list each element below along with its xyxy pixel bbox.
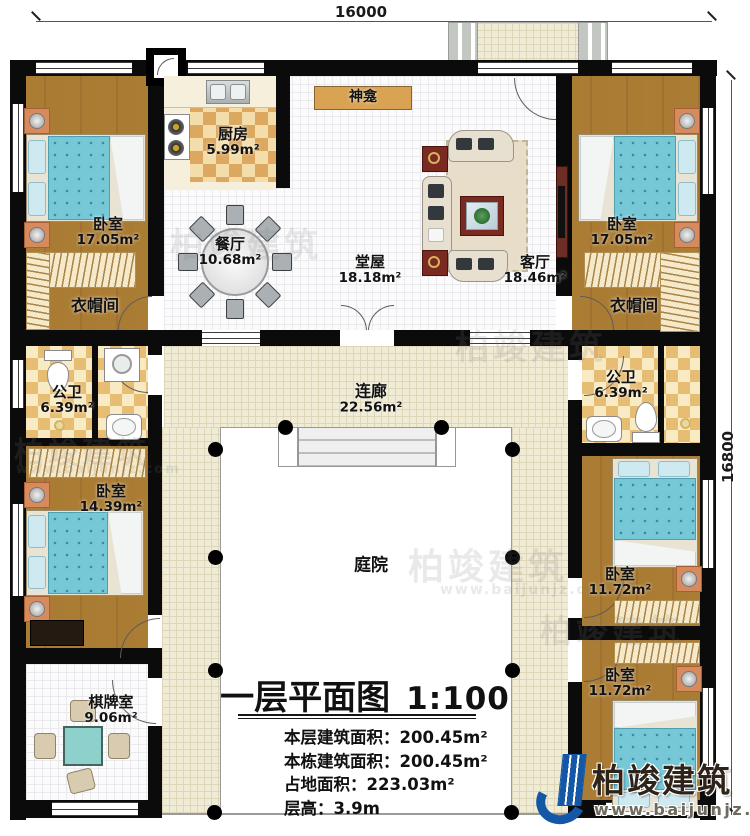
nightstand-icon — [676, 566, 702, 592]
sofa-cushion — [428, 184, 444, 198]
window-dining-corridor — [202, 332, 260, 344]
window-right-bedroomr1 — [702, 480, 714, 568]
window-top-bedroomtr — [612, 62, 692, 74]
nightstand-icon — [24, 596, 50, 622]
column-dot — [278, 420, 293, 435]
dimension-top-value: 16000 — [321, 3, 401, 21]
wall-leftwing-inner-a — [148, 334, 162, 355]
wall-dining-corridor-b — [260, 330, 340, 346]
pillow-icon — [28, 556, 46, 589]
label-living: 客厅 18.46m² — [504, 254, 567, 286]
sofa-cushion — [428, 228, 444, 242]
column-dot — [207, 805, 222, 820]
sink-basin-icon — [210, 84, 226, 100]
sofa-cushion — [456, 138, 472, 150]
sink-bowl — [592, 420, 616, 438]
dimension-tick — [31, 11, 41, 21]
desk-icon — [30, 620, 84, 646]
wall-bathr-divider — [658, 346, 664, 443]
label-corridor: 连廊 22.56m² — [340, 382, 403, 415]
sink-basin-icon — [230, 84, 246, 100]
label-bath-left: 公卫 6.39m² — [40, 384, 93, 416]
window-bottom-chess — [52, 802, 138, 816]
lamp-icon — [428, 152, 440, 164]
info-building-area: 本栋建筑面积：200.45m² — [284, 750, 514, 774]
toilet-tank-icon — [632, 432, 660, 443]
nightstand-icon — [24, 482, 50, 508]
pillow-icon — [28, 182, 46, 216]
closet-rack-icon — [584, 252, 662, 288]
sofa-cushion — [456, 258, 472, 270]
column-dot — [208, 442, 223, 457]
floor-plan-canvas: 柏竣建筑 柏竣建筑 www.baijunjz.com 柏竣建筑 柏竣建筑 www… — [0, 0, 750, 836]
label-bedroom-r1: 卧室 11.72m² — [589, 566, 652, 598]
pillow-icon — [28, 515, 46, 548]
wall-dining-corridor-a — [164, 330, 202, 346]
pillow-icon — [678, 140, 696, 174]
mattress-icon — [614, 136, 676, 220]
sofa-cushion — [478, 258, 494, 270]
mattress-icon — [48, 512, 108, 594]
plant-icon — [474, 208, 490, 224]
pillow-icon — [658, 461, 690, 477]
label-chess-room: 棋牌室 9.06m² — [84, 694, 137, 726]
info-floor-area: 本层建筑面积：200.45m² — [284, 726, 514, 750]
brand-logo: 柏竣建筑 www.baijunjz.com — [534, 750, 750, 836]
nightstand-icon — [674, 222, 700, 248]
plan-title-row: 一层平面图 1:100 — [215, 670, 515, 714]
pillow-icon — [678, 182, 696, 216]
wall-cloaktl-bottom — [26, 330, 166, 346]
label-courtyard: 庭院 — [354, 556, 388, 575]
sofa-cushion — [478, 138, 494, 150]
watermark-url: www.baijunjz.com — [16, 462, 181, 477]
label-kitchen: 厨房 5.99m² — [206, 126, 259, 158]
pillow-icon — [618, 461, 650, 477]
wall-leftwing-inner-d — [148, 726, 162, 800]
column-dot — [208, 550, 223, 565]
door-gap-hall — [340, 330, 394, 346]
burner-icon — [168, 140, 184, 156]
wall-bathr-bedroomr1 — [582, 443, 700, 456]
window-left-bedroomtl — [12, 104, 24, 192]
column-dot — [434, 420, 449, 435]
label-bedroom-tr: 卧室 17.05m² — [591, 216, 654, 248]
mattress-icon — [48, 136, 110, 220]
closet-rack-icon — [26, 252, 50, 330]
plan-info-block: 本层建筑面积：200.45m² 本栋建筑面积：200.45m² 占地面积：223… — [284, 726, 514, 820]
closet-rack-icon — [660, 252, 700, 332]
mahjong-table-icon — [63, 726, 103, 766]
window-top-bedroomtl — [36, 62, 132, 74]
nightstand-icon — [674, 108, 700, 134]
chair-icon — [108, 733, 130, 759]
label-hall: 堂屋 18.18m² — [339, 254, 402, 286]
window-entry — [478, 62, 578, 74]
closet-rack-icon — [48, 252, 136, 288]
pillow-icon — [28, 140, 46, 174]
wall-leftwing-inner-b — [148, 395, 162, 615]
chair-icon — [34, 733, 56, 759]
nightstand-icon — [24, 222, 50, 248]
plan-title: 一层平面图 — [220, 670, 390, 719]
label-bath-right: 公卫 6.39m² — [594, 369, 647, 401]
window-left-bathl — [12, 360, 24, 408]
wall-kitchen-hall — [276, 76, 290, 188]
toilet-tank-icon — [44, 350, 72, 361]
label-bedroom-r2: 卧室 11.72m² — [589, 667, 652, 699]
window-left-bedrooml — [12, 504, 24, 596]
watermark-text: 柏竣建筑 — [455, 320, 607, 369]
info-floor-height: 层高：3.9m — [284, 797, 514, 821]
toilet-icon — [635, 402, 657, 432]
window-top-kitchen — [188, 62, 264, 74]
label-cloak-right: 衣帽间 — [610, 297, 658, 315]
wall-bedroomtl-kitchen — [148, 76, 164, 296]
tv-icon — [558, 186, 565, 238]
lamp-icon — [428, 256, 440, 268]
wall-rightwing-inner-b — [568, 400, 582, 578]
courtyard-steps — [298, 427, 436, 467]
plan-scale: 1:100 — [406, 681, 510, 717]
burner-icon — [168, 119, 184, 135]
column-dot — [505, 442, 520, 457]
dimension-right-value: 16800 — [719, 416, 737, 498]
dimension-line-top — [36, 21, 712, 22]
washer-drum — [112, 354, 132, 374]
label-bedroom-tl: 卧室 17.05m² — [77, 216, 140, 248]
title-underline — [238, 714, 476, 719]
info-footprint-area: 占地面积：223.03m² — [284, 773, 514, 797]
nightstand-icon — [24, 108, 50, 134]
mattress-icon — [614, 478, 696, 540]
watermark-text: 柏竣建筑 — [540, 606, 684, 652]
dimension-tick — [726, 70, 736, 80]
label-bedroom-left: 卧室 14.39m² — [80, 483, 143, 515]
dimension-tick — [707, 11, 717, 21]
sofa-cushion — [428, 206, 444, 220]
window-right-bedroomtr — [702, 108, 714, 194]
nightstand-icon — [676, 666, 702, 692]
corridor-left-floor — [162, 427, 220, 815]
logo-text: 柏竣建筑 — [592, 754, 732, 802]
label-cloak-left: 衣帽间 — [71, 297, 119, 315]
label-shrine: 神龛 — [349, 90, 377, 106]
chair-icon — [226, 299, 244, 319]
label-dining: 餐厅 10.68m² — [199, 236, 262, 268]
logo-url: www.baijunjz.com — [594, 800, 750, 819]
floor-drain-icon — [680, 418, 691, 429]
